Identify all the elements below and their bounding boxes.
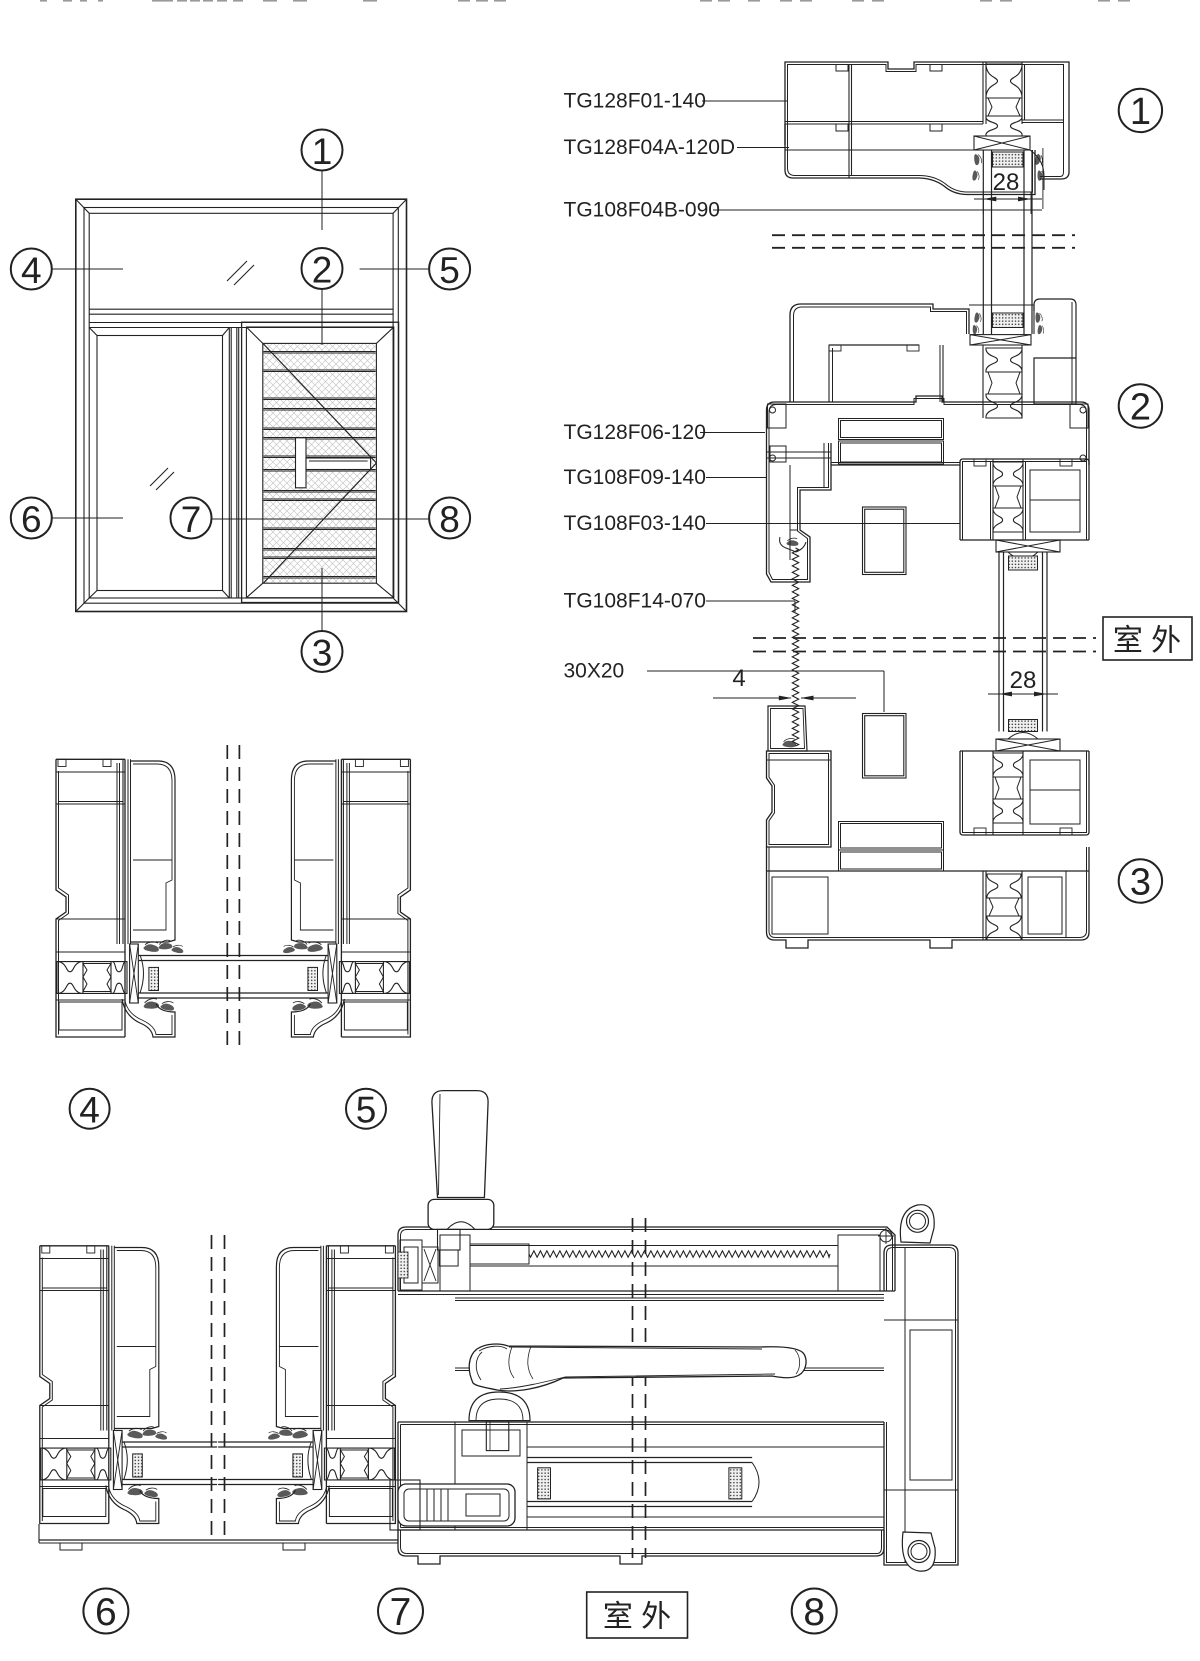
svg-text:室 外: 室 外 <box>1113 625 1181 658</box>
svg-text:TG128F04A-120D: TG128F04A-120D <box>564 136 736 159</box>
svg-text:TG108F09-140: TG108F09-140 <box>564 466 706 489</box>
svg-text:7: 7 <box>390 1591 412 1634</box>
svg-text:2: 2 <box>1130 387 1151 429</box>
svg-text:5: 5 <box>439 250 460 291</box>
svg-text:2: 2 <box>312 250 333 291</box>
svg-text:6: 6 <box>95 1591 117 1634</box>
svg-text:3: 3 <box>1130 862 1151 904</box>
svg-text:8: 8 <box>439 499 460 540</box>
svg-text:1: 1 <box>312 131 333 172</box>
svg-text:3: 3 <box>312 633 333 674</box>
svg-text:TG108F14-070: TG108F14-070 <box>564 590 706 613</box>
svg-text:TG128F01-140: TG128F01-140 <box>564 90 706 113</box>
svg-text:TG128F06-120: TG128F06-120 <box>564 421 706 444</box>
svg-text:6: 6 <box>21 499 42 540</box>
svg-text:5: 5 <box>356 1090 377 1131</box>
svg-text:4: 4 <box>732 665 745 692</box>
svg-text:30X20: 30X20 <box>564 660 625 683</box>
svg-text:28: 28 <box>993 169 1020 196</box>
svg-text:28: 28 <box>1010 667 1037 694</box>
svg-text:8: 8 <box>803 1591 825 1634</box>
svg-text:TG108F03-140: TG108F03-140 <box>564 512 706 535</box>
svg-text:1: 1 <box>1130 91 1151 133</box>
svg-text:4: 4 <box>21 250 42 291</box>
svg-text:TG108F04B-090: TG108F04B-090 <box>564 199 720 222</box>
svg-text:7: 7 <box>181 499 202 540</box>
svg-text:4: 4 <box>79 1090 100 1131</box>
svg-text:室 外: 室 外 <box>603 1601 671 1634</box>
